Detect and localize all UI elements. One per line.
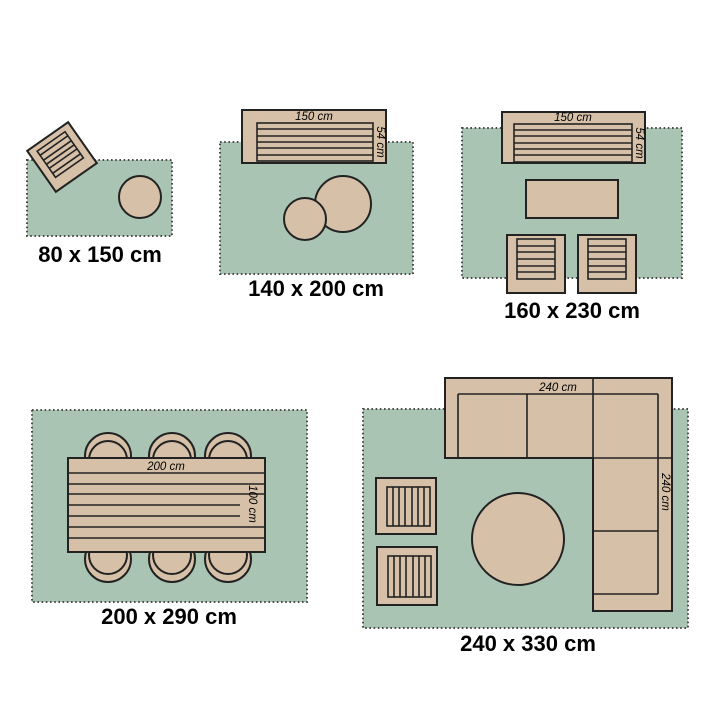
coffee-table: [526, 180, 618, 218]
sofa: 150 cm 54 cm: [502, 112, 645, 163]
size-label: 140 x 200 cm: [248, 276, 384, 301]
sofa-width-label: 150 cm: [554, 112, 592, 124]
table-width-label: 200 cm: [146, 461, 185, 473]
diagram-200x290: 200 cm 100 cm 200 x 290 cm: [32, 410, 307, 629]
sofa-depth-label: 54 cm: [633, 127, 645, 159]
sofa: 150 cm 54 cm: [242, 110, 386, 163]
diagram-80x150: 80 x 150 cm: [27, 122, 172, 267]
chair: [578, 235, 636, 293]
rug-size-guide: 80 x 150 cm 150 cm 54 cm 140 x 200 cm: [0, 0, 720, 720]
sofa-depth-label: 240 cm: [659, 472, 671, 511]
diagram-160x230: 150 cm 54 cm 160 x 230 cm: [462, 112, 682, 323]
diagram-240x330: 240 cm 240 cm 240 x 330 cm: [363, 378, 688, 656]
round-table: [472, 493, 564, 585]
sofa-depth-label: 54 cm: [374, 126, 386, 158]
table-depth-label: 100 cm: [246, 485, 258, 523]
size-label: 80 x 150 cm: [38, 242, 162, 267]
rug-size-diagrams: 80 x 150 cm 150 cm 54 cm 140 x 200 cm: [0, 0, 720, 720]
small-pouf: [284, 198, 326, 240]
chair: [507, 235, 565, 293]
diagram-140x200: 150 cm 54 cm 140 x 200 cm: [220, 110, 413, 301]
round-pouf: [119, 176, 161, 218]
size-label: 160 x 230 cm: [504, 298, 640, 323]
chair: [377, 547, 437, 605]
size-label: 200 x 290 cm: [101, 604, 237, 629]
sofa-width-label: 240 cm: [538, 382, 577, 394]
chair: [376, 478, 436, 534]
size-label: 240 x 330 cm: [460, 631, 596, 656]
sofa-width-label: 150 cm: [295, 111, 333, 123]
dining-table: 200 cm 100 cm: [68, 458, 265, 552]
